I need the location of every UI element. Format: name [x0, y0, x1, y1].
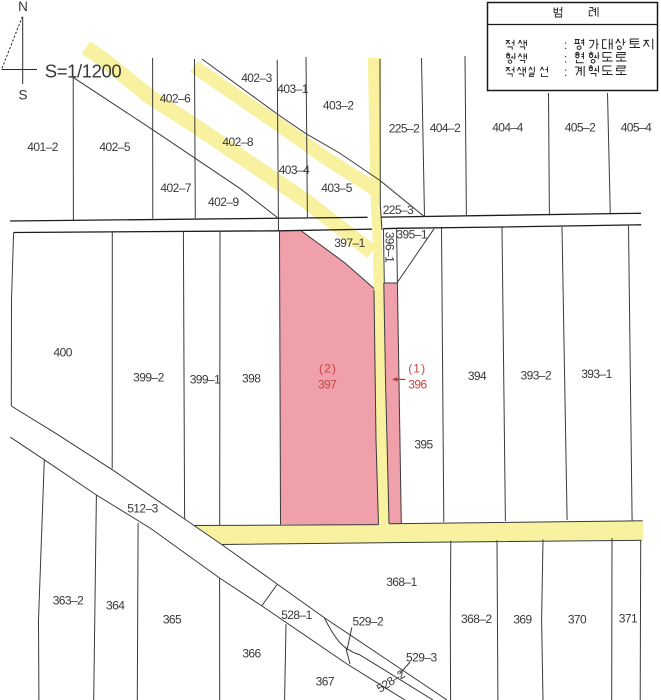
svg-text:404–2: 404–2	[430, 121, 461, 135]
svg-text:399–2: 399–2	[133, 371, 164, 385]
svg-text:370: 370	[568, 612, 587, 626]
svg-text:397–1: 397–1	[334, 236, 365, 250]
svg-text:404–4: 404–4	[492, 121, 523, 135]
svg-text:403–5: 403–5	[321, 181, 352, 195]
svg-text:401–2: 401–2	[27, 140, 58, 154]
svg-text::: :	[564, 65, 567, 79]
svg-text:529–2: 529–2	[352, 614, 383, 628]
svg-text:N: N	[18, 0, 28, 14]
svg-text:512–3: 512–3	[127, 502, 158, 516]
svg-text:402–7: 402–7	[160, 181, 191, 195]
svg-text:398: 398	[242, 372, 261, 386]
svg-text:367: 367	[316, 675, 335, 689]
svg-text:(1): (1)	[408, 362, 426, 376]
svg-text:225–3: 225–3	[383, 203, 414, 217]
svg-text:363–2: 363–2	[53, 594, 84, 608]
svg-text:395: 395	[414, 438, 433, 452]
svg-text:402–3: 402–3	[241, 71, 272, 85]
svg-text:371: 371	[619, 612, 638, 626]
svg-text:403–2: 403–2	[323, 99, 354, 113]
svg-text::: :	[564, 38, 567, 52]
svg-text:S=1/1200: S=1/1200	[45, 61, 122, 82]
svg-text:399–1: 399–1	[190, 372, 221, 386]
svg-text:402–9: 402–9	[208, 195, 239, 209]
svg-text:396: 396	[408, 378, 427, 392]
svg-text:366: 366	[242, 647, 261, 661]
svg-text:368–2: 368–2	[461, 612, 492, 626]
svg-text:397: 397	[318, 378, 337, 392]
svg-text:402–8: 402–8	[222, 135, 253, 149]
svg-text:403–1: 403–1	[277, 82, 308, 96]
svg-text:365: 365	[163, 613, 182, 627]
svg-text:394: 394	[468, 369, 487, 383]
svg-text:405–4: 405–4	[621, 121, 652, 135]
svg-text:402–5: 402–5	[99, 140, 130, 154]
svg-text:402–6: 402–6	[160, 92, 191, 106]
svg-text:393–1: 393–1	[581, 367, 612, 381]
svg-text:S: S	[18, 87, 27, 102]
svg-text:400: 400	[54, 345, 73, 359]
svg-text:528–1: 528–1	[281, 608, 312, 622]
svg-text:529–3: 529–3	[406, 651, 437, 665]
svg-text:369: 369	[513, 612, 532, 626]
svg-text:368–1: 368–1	[386, 575, 417, 589]
svg-text::: :	[564, 52, 567, 66]
svg-text:395–1: 395–1	[396, 228, 427, 242]
svg-text:393–2: 393–2	[520, 368, 551, 382]
svg-text:364: 364	[106, 598, 125, 612]
svg-text:(2): (2)	[319, 362, 337, 376]
svg-text:403–4: 403–4	[279, 163, 310, 177]
svg-text:396–1: 396–1	[383, 232, 397, 263]
svg-text:405–2: 405–2	[565, 121, 596, 135]
svg-text:225–2: 225–2	[389, 122, 420, 136]
